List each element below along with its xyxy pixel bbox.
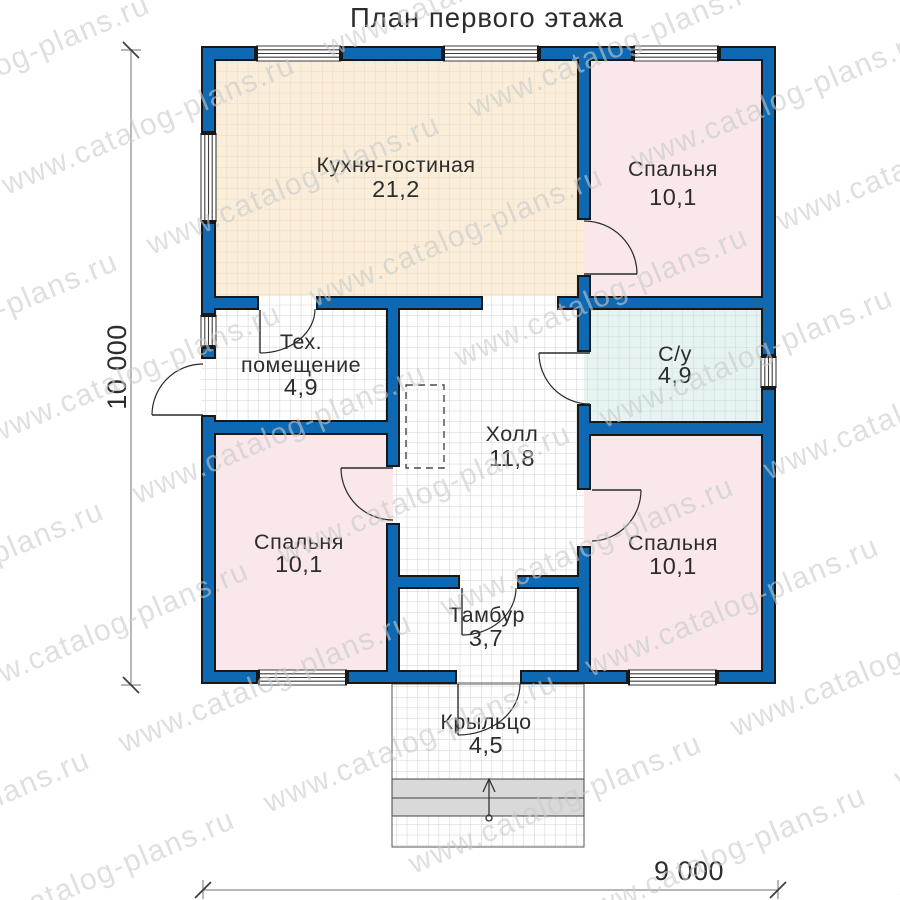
svg-text:10,1: 10,1: [649, 184, 697, 210]
svg-text:4,9: 4,9: [284, 374, 318, 400]
svg-text:3,7: 3,7: [469, 625, 503, 651]
svg-text:21,2: 21,2: [372, 176, 420, 202]
svg-text:4,5: 4,5: [469, 732, 503, 758]
svg-text:10,1: 10,1: [649, 553, 697, 579]
svg-text:Тех.: Тех.: [280, 330, 322, 354]
